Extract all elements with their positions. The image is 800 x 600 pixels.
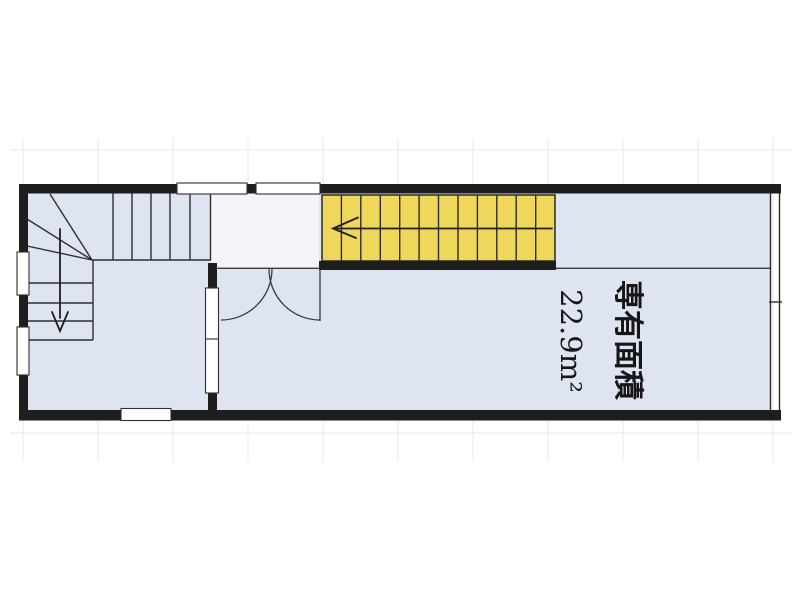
window-bottom: [121, 409, 171, 421]
window-top-2: [256, 183, 320, 194]
sliding-door-interior: [206, 288, 219, 393]
stair-landing: [211, 193, 319, 268]
wall-left: [19, 184, 28, 420]
window-left-2: [17, 327, 29, 375]
floor-plan: 専有面積 22.9m²: [0, 0, 800, 600]
wall-under-stairs: [319, 261, 556, 270]
window-left-1: [17, 252, 29, 295]
stair-hall-floor: [28, 193, 217, 410]
wall-top: [19, 184, 781, 194]
area-label: 専有面積: [610, 280, 645, 400]
wall-interior-lower: [208, 393, 217, 412]
wall-interior-upper: [208, 263, 217, 288]
window-top-1: [177, 183, 247, 194]
floor-plan-drawing: 専有面積 22.9m²: [0, 0, 800, 600]
wall-right-boundary: [769, 193, 782, 411]
staircase-upper-highlight: [322, 195, 555, 261]
area-value: 22.9m²: [554, 289, 588, 393]
